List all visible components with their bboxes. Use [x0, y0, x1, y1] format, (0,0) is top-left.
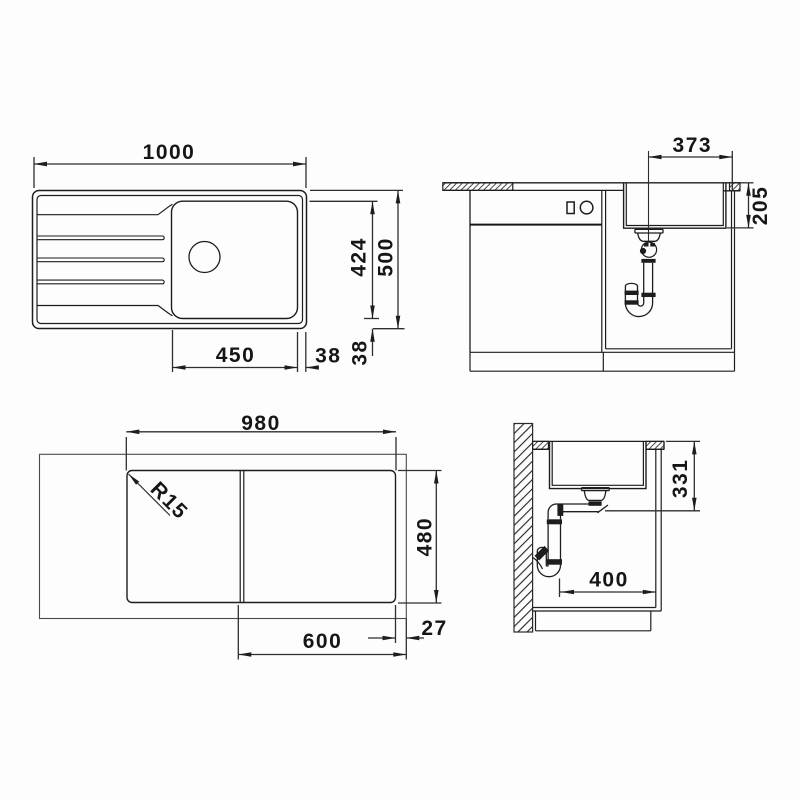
svg-text:450: 450	[216, 344, 256, 367]
svg-text:38: 38	[315, 345, 341, 368]
svg-text:480: 480	[414, 517, 437, 557]
svg-text:500: 500	[375, 237, 398, 277]
svg-text:27: 27	[421, 617, 447, 640]
svg-text:400: 400	[589, 569, 629, 592]
svg-text:600: 600	[303, 630, 343, 653]
svg-text:38: 38	[349, 339, 372, 365]
svg-text:331: 331	[669, 459, 692, 499]
svg-text:373: 373	[673, 134, 713, 157]
svg-text:980: 980	[241, 412, 281, 435]
svg-text:1000: 1000	[143, 141, 196, 164]
svg-text:205: 205	[749, 186, 772, 226]
svg-text:424: 424	[348, 237, 371, 277]
svg-text:R15: R15	[146, 478, 193, 525]
